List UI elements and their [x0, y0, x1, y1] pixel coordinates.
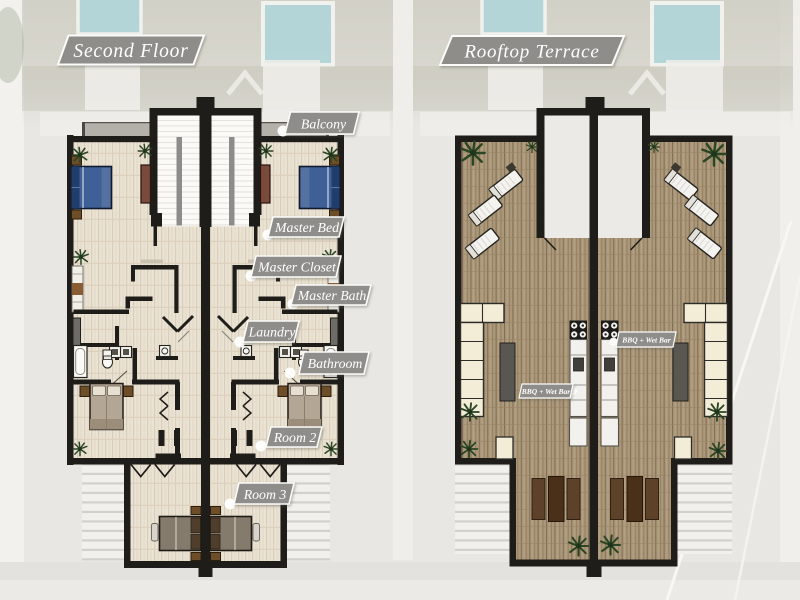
svg-text:Master Bath: Master Bath: [297, 288, 367, 303]
svg-text:Bathroom: Bathroom: [308, 356, 363, 371]
svg-text:Rooftop Terrace: Rooftop Terrace: [463, 42, 599, 63]
svg-text:Second Floor: Second Floor: [73, 41, 188, 62]
svg-text:Room 3: Room 3: [243, 487, 287, 502]
svg-text:BBQ + Wet Bar: BBQ + Wet Bar: [521, 387, 570, 396]
svg-text:Master Closet: Master Closet: [257, 260, 337, 275]
svg-text:BBQ + Wet Bar: BBQ + Wet Bar: [621, 336, 670, 345]
svg-text:Room 2: Room 2: [273, 430, 317, 445]
svg-text:Balcony: Balcony: [301, 117, 347, 132]
svg-text:Laundry: Laundry: [248, 325, 297, 340]
svg-text:Master Bed: Master Bed: [274, 220, 339, 235]
